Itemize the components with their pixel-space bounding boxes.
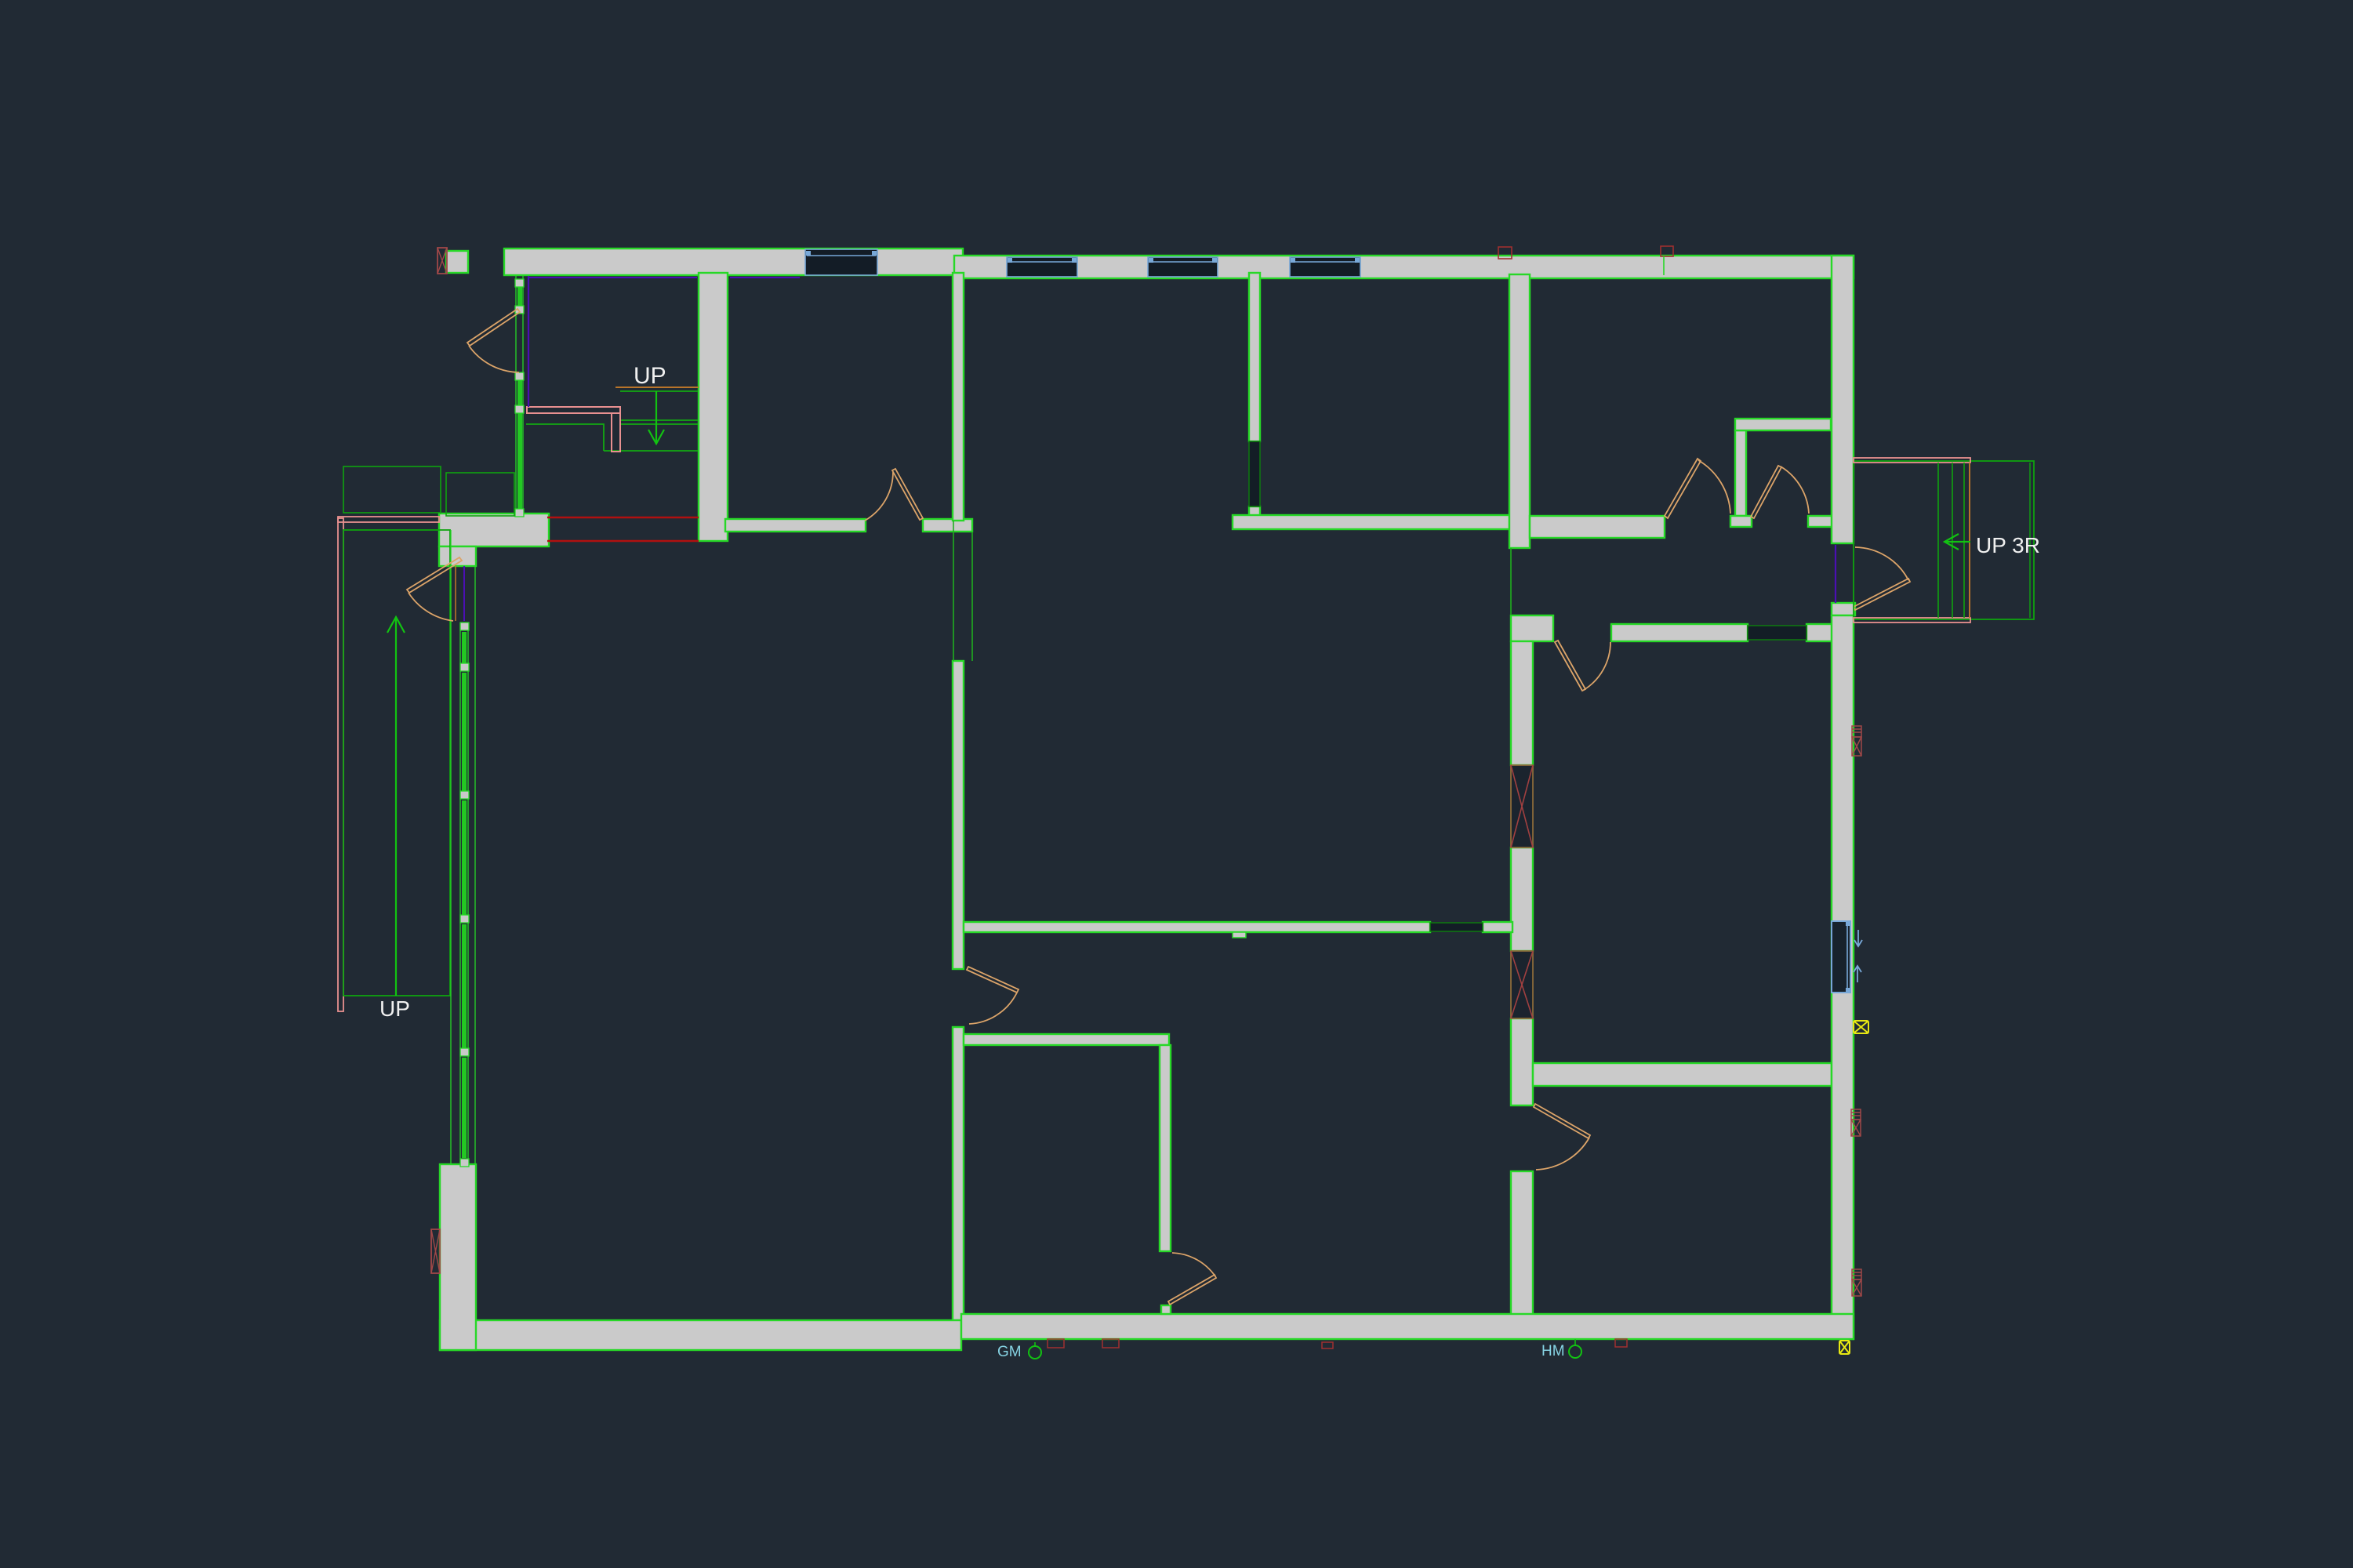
svg-text:UP 3R: UP 3R bbox=[1976, 533, 2040, 557]
svg-text:UP: UP bbox=[379, 996, 410, 1021]
svg-text:HM: HM bbox=[1541, 1343, 1565, 1359]
svg-text:UP: UP bbox=[634, 363, 666, 389]
svg-text:GM: GM bbox=[997, 1344, 1022, 1360]
